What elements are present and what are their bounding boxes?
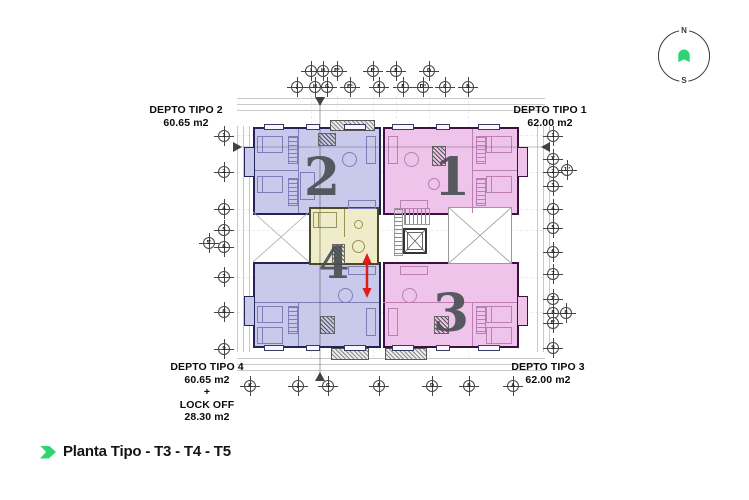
caption-chevron-icon: [40, 446, 56, 459]
lock-off-name: LOCK OFF: [141, 399, 273, 412]
grid-bubble-4: 4: [218, 203, 230, 215]
bath-hatch: [320, 316, 335, 334]
grid-bubble-5: 5: [547, 222, 559, 234]
sofa: [388, 308, 398, 336]
stool: [354, 220, 363, 229]
dining-table: [338, 288, 353, 303]
label-depto-tipo-2: DEPTO TIPO 2 60.65 m2: [120, 104, 252, 129]
balcony-left-bottom: [244, 296, 255, 326]
grid-bubble-7: 7: [218, 271, 230, 283]
depto-tipo-1-area: 62.00 m2: [484, 117, 616, 130]
bed: [257, 327, 283, 344]
stairs-landing: [404, 208, 430, 225]
sofa: [366, 136, 376, 164]
closet: [476, 178, 486, 206]
grid-bubble-E: E: [390, 65, 402, 77]
bed: [257, 306, 283, 323]
grid-bubble-E: E: [397, 81, 409, 93]
label-depto-tipo-1: DEPTO TIPO 1 62.00 m2: [484, 104, 616, 129]
closet: [288, 136, 298, 164]
kitchen-counter: [400, 266, 428, 275]
grid-bubble-5: 5: [218, 224, 230, 236]
label-depto-tipo-3: DEPTO TIPO 3 62.00 m2: [482, 361, 614, 386]
table: [352, 240, 365, 253]
depto-tipo-4-plus: +: [141, 386, 273, 399]
unit-number-4: 4: [319, 242, 350, 286]
bed: [486, 136, 512, 153]
grid-bubble-8': 8': [547, 317, 559, 329]
grid-bubble-6: 6: [218, 241, 230, 253]
sofa: [366, 308, 376, 336]
unit-number-3: 3: [433, 288, 469, 340]
grid-bubble-7: 7: [547, 268, 559, 280]
bed: [486, 306, 512, 323]
grid-bubble-1: 1: [218, 130, 230, 142]
grid-bubble-D: D: [423, 65, 435, 77]
depto-tipo-2-area: 60.65 m2: [120, 117, 252, 130]
dining-table: [402, 288, 417, 303]
depto-tipo-3-area: 62.00 m2: [482, 374, 614, 387]
grid-bubble-D: D: [426, 380, 438, 392]
grid-bubble-2: 2: [218, 166, 230, 178]
closet: [288, 306, 298, 334]
closet: [476, 306, 486, 334]
dining-table: [342, 152, 357, 167]
depto-tipo-4-area: 60.65 m2: [141, 374, 273, 387]
kitchen-counter: [348, 200, 376, 209]
balcony-right-top: [517, 147, 528, 177]
unit-number-2: 2: [304, 152, 340, 204]
grid-bubble-F': F': [367, 65, 379, 77]
compass-south-label: S: [679, 77, 688, 85]
balcony-left-top: [244, 147, 255, 177]
north-arrow-icon: [677, 49, 691, 63]
grid-bubble-3: 3: [547, 180, 559, 192]
dining-table: [404, 152, 419, 167]
sofa: [388, 136, 398, 164]
grid-bubble-1: 1: [547, 130, 559, 142]
grid-bubble-B: B: [462, 81, 474, 93]
depto-tipo-1-name: DEPTO TIPO 1: [484, 104, 616, 117]
kitchen-counter: [400, 200, 428, 209]
grid-bubble-C: C: [439, 81, 451, 93]
grid-bubble-9: 9: [218, 343, 230, 355]
grid-bubble-4: 4: [547, 203, 559, 215]
closet: [288, 178, 298, 206]
lock-off-area: 28.30 m2: [141, 411, 273, 424]
grid-bubble-F°: F°: [331, 65, 343, 77]
grid-bubble-B: B: [463, 380, 475, 392]
grid-bubble-D°: D°: [417, 81, 429, 93]
stairs: [394, 208, 403, 256]
plan-caption: Planta Tipo - T3 - T4 - T5: [40, 443, 231, 461]
grid-bubble-J: J: [292, 380, 304, 392]
kitchen-counter: [348, 266, 376, 275]
grid-bubble-G: G: [322, 380, 334, 392]
grid-bubble-9: 9: [547, 342, 559, 354]
depto-tipo-2-name: DEPTO TIPO 2: [120, 104, 252, 117]
grid-bubble-F: F: [373, 81, 385, 93]
compass-north-label: N: [679, 27, 689, 35]
compass: N S: [658, 30, 710, 82]
bed: [313, 212, 337, 228]
balcony-right-bottom: [517, 296, 528, 326]
grid-bubble-F°: F°: [344, 81, 356, 93]
label-depto-tipo-4: DEPTO TIPO 4 60.65 m2 + LOCK OFF 28.30 m…: [141, 361, 273, 424]
grid-bubble-6: 6: [547, 246, 559, 258]
caption-text: Planta Tipo - T3 - T4 - T5: [63, 443, 231, 461]
floor-plan-page: N S DEPTO TIPO 2 60.65 m2 DEPTO TIPO 1 6…: [0, 0, 749, 500]
bed: [486, 327, 512, 344]
grid-bubble-1'': 1'': [561, 164, 573, 176]
grid-bubble-8: 8: [218, 306, 230, 318]
section-marker-bottom: [315, 372, 325, 381]
depto-tipo-3-name: DEPTO TIPO 3: [482, 361, 614, 374]
elevator-cab: [407, 232, 423, 250]
grid-bubble-F: F: [373, 380, 385, 392]
closet: [476, 136, 486, 164]
unit-number-1: 1: [434, 152, 470, 204]
bed: [486, 176, 512, 193]
grid-bubble-J: J: [291, 81, 303, 93]
depto-tipo-4-name: DEPTO TIPO 4: [141, 361, 273, 374]
bath-hatch: [318, 133, 336, 146]
grid-bubble-8: 8: [560, 307, 572, 319]
bed: [257, 176, 283, 193]
core-void: [448, 207, 512, 264]
bed: [257, 136, 283, 153]
grid-bubble-G: G: [321, 81, 333, 93]
